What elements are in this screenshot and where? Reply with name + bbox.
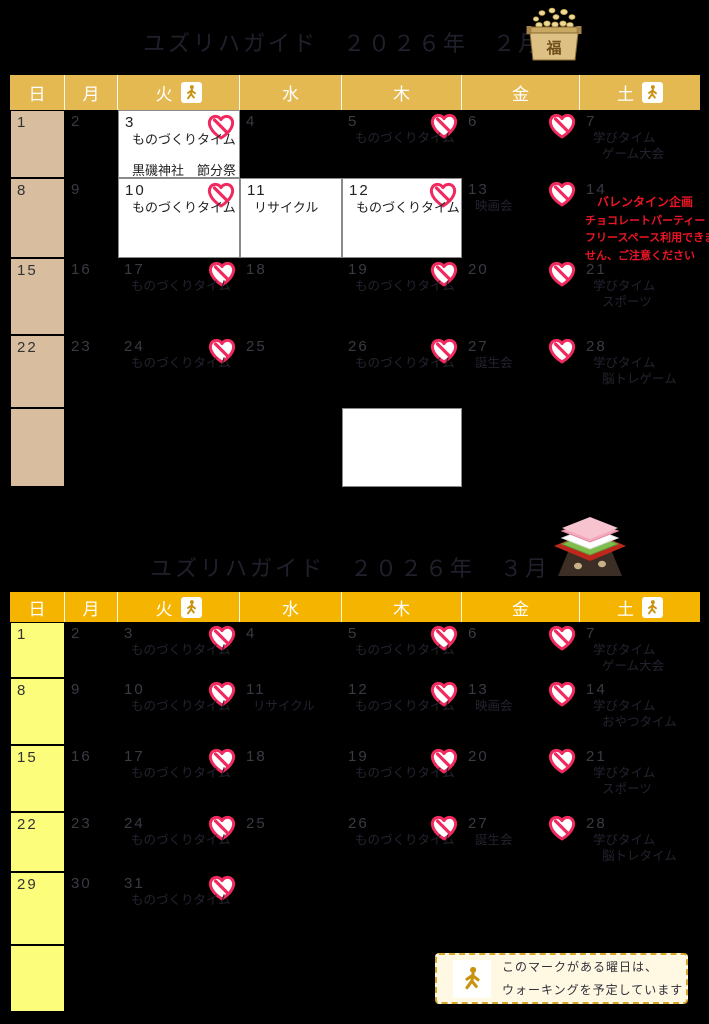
day-cell: 15 — [10, 745, 65, 812]
day-number: 12 — [349, 182, 370, 199]
event-line: ものづくりタイム — [131, 699, 238, 715]
heart-icon — [547, 111, 577, 140]
weekday-header-row: 日月火 水木金土 — [10, 592, 700, 622]
event-text: ものづくりタイム — [355, 833, 460, 849]
day-cell — [65, 945, 118, 1012]
event-text: 学びタイムゲーム大会 — [593, 643, 698, 674]
day-cell: 3 ものづくりタイム — [118, 622, 240, 678]
event-line: 誕生会 — [475, 833, 578, 849]
event-line: ものづくりタイム — [132, 132, 237, 148]
day-cell: 8 — [10, 678, 65, 745]
event-line: 誕生会 — [475, 356, 578, 372]
day-number: 6 — [468, 625, 478, 642]
day-number: 21 — [586, 748, 607, 765]
heart-icon — [547, 259, 577, 288]
day-cell: 27 誕生会 — [462, 812, 580, 872]
day-cell — [342, 408, 462, 487]
walking-person-icon — [181, 597, 202, 618]
day-cell: 9 — [65, 678, 118, 745]
day-cell: 11リサイクル — [240, 678, 342, 745]
weekday-header: 月 — [65, 75, 118, 110]
day-cell: 13 映画会 — [462, 178, 580, 258]
day-number: 15 — [17, 749, 38, 766]
event-text: 誕生会 — [475, 833, 578, 849]
event-line: 学びタイム — [593, 699, 698, 715]
day-number: 2 — [71, 625, 81, 642]
day-cell: 9 — [65, 178, 118, 258]
weekday-label: 月 — [83, 595, 100, 620]
event-text: ものづくりタイム — [131, 279, 238, 295]
event-line: ものづくりタイム — [355, 643, 460, 659]
calendar-week-row: 8910 ものづくりタイム11リサイクル12 ものづくりタイム13 映画会14学… — [10, 678, 700, 745]
day-cell: 18 — [240, 745, 342, 812]
day-number: 22 — [17, 816, 38, 833]
day-cell: 2 — [65, 622, 118, 678]
walking-person-icon — [181, 82, 202, 103]
day-cell: 6 — [462, 110, 580, 178]
alert-line: チョコレートパーティー — [585, 213, 699, 231]
event-line: ものづくりタイム — [355, 279, 460, 295]
day-cell: 12 ものづくりタイム — [342, 178, 462, 258]
title-february: ユズリハガイド ２０２６年 ２月 — [143, 26, 543, 58]
calendar-week-row: 151617 ものづくりタイム1819 ものづくりタイム20 21学びタイムスポ… — [10, 258, 700, 335]
weekday-label: 水 — [282, 80, 299, 105]
event-text: ものづくりタイム — [356, 200, 459, 216]
day-number: 27 — [468, 815, 489, 832]
event-line: リサイクル — [253, 699, 340, 715]
day-number: 19 — [348, 748, 369, 765]
event-line: 映画会 — [475, 699, 578, 715]
weekday-header: 金 — [462, 75, 580, 110]
day-cell — [118, 945, 240, 1012]
event-text: 学びタイム脳トレゲーム — [593, 356, 698, 387]
event-line: 学びタイム — [593, 356, 698, 372]
day-number: 31 — [124, 875, 145, 892]
day-cell: 29 — [10, 872, 65, 945]
calendar-week-row: 222324 ものづくりタイム2526 ものづくりタイム27 誕生会28学びタイ… — [10, 812, 700, 872]
day-cell: 14学びタイムおやつタイム — [580, 678, 700, 745]
weekday-label: 金 — [512, 80, 529, 105]
day-cell: 5 ものづくりタイム — [342, 110, 462, 178]
day-cell: 10 ものづくりタイム — [118, 678, 240, 745]
weekday-header: 水 — [240, 592, 342, 622]
day-number: 5 — [348, 113, 358, 130]
event-text: ものづくりタイム — [131, 893, 238, 909]
event-text: リサイクル — [254, 200, 339, 216]
event-line: スポーツ — [602, 295, 698, 311]
event-text: ものづくりタイム 黒磯神社 節分祭 — [132, 132, 237, 179]
day-cell: 24 ものづくりタイム — [118, 812, 240, 872]
walking-person-icon — [642, 597, 663, 618]
calendar-week-row: 151617 ものづくりタイム1819 ものづくりタイム20 21学びタイムスポ… — [10, 745, 700, 812]
day-number: 22 — [17, 339, 38, 356]
day-number: 1 — [17, 114, 27, 131]
hishimochi-icon — [548, 506, 632, 583]
day-number: 3 — [124, 625, 134, 642]
weekday-header: 木 — [342, 592, 462, 622]
day-cell: 7学びタイムゲーム大会 — [580, 110, 700, 178]
heart-icon — [547, 746, 577, 775]
day-number: 11 — [246, 681, 266, 698]
alert-line: フリースペース利用できま — [585, 230, 699, 248]
event-line: ものづくりタイム — [355, 356, 460, 372]
day-cell — [240, 872, 342, 945]
calendar-week-row — [10, 408, 700, 487]
weekday-label: 日 — [29, 595, 46, 620]
event-text: ものづくりタイム — [355, 766, 460, 782]
day-cell: 31 ものづくりタイム — [118, 872, 240, 945]
legend-line-1: このマークがある曜日は、 — [502, 956, 683, 979]
day-number: 18 — [246, 748, 267, 765]
day-cell — [65, 408, 118, 487]
day-number: 29 — [17, 876, 38, 893]
event-text: ものづくりタイム — [355, 643, 460, 659]
legend-line-2: ウォーキングを予定しています — [502, 979, 683, 1002]
day-cell: 2 — [65, 110, 118, 178]
day-number: 20 — [468, 748, 489, 765]
walking-person-icon — [642, 82, 663, 103]
day-number: 23 — [71, 815, 92, 832]
event-line: スポーツ — [602, 782, 698, 798]
day-number: 19 — [348, 261, 369, 278]
day-cell: 22 — [10, 812, 65, 872]
weekday-header: 木 — [342, 75, 462, 110]
day-number: 7 — [586, 113, 596, 130]
event-line: ものづくりタイム — [131, 766, 238, 782]
weekday-label: 土 — [617, 595, 634, 620]
weekday-header: 月 — [65, 592, 118, 622]
event-line: 学びタイム — [593, 131, 698, 147]
weekday-label: 金 — [512, 595, 529, 620]
day-number: 12 — [348, 681, 369, 698]
event-text: 誕生会 — [475, 356, 578, 372]
event-line: ものづくりタイム — [131, 893, 238, 909]
weekday-label: 月 — [83, 80, 100, 105]
alert-line: バレンタイン企画 — [597, 194, 699, 212]
event-line: ものづくりタイム — [131, 643, 238, 659]
day-number: 8 — [17, 682, 27, 699]
event-text: 学びタイム脳トレタイム — [593, 833, 698, 864]
event-line: ものづくりタイム — [131, 833, 238, 849]
event-text: ものづくりタイム — [131, 699, 238, 715]
day-cell — [240, 408, 342, 487]
alert-notice-text: バレンタイン企画チョコレートパーティーフリースペース利用できません、ご注意くださ… — [585, 194, 699, 265]
day-cell: 22 — [10, 335, 65, 408]
event-text: 映画会 — [475, 199, 578, 215]
day-number: 24 — [124, 815, 145, 832]
event-line: リサイクル — [254, 200, 339, 216]
day-cell: 27 誕生会 — [462, 335, 580, 408]
day-cell: 26 ものづくりタイム — [342, 335, 462, 408]
day-cell: 4 — [240, 622, 342, 678]
event-line: 黒磯神社 節分祭 — [132, 163, 237, 179]
event-line: 学びタイム — [593, 766, 698, 782]
day-cell — [118, 408, 240, 487]
event-text: ものづくりタイム — [131, 356, 238, 372]
day-number: 25 — [246, 338, 267, 355]
day-cell — [342, 872, 462, 945]
day-number: 13 — [468, 681, 489, 698]
event-text: リサイクル — [253, 699, 340, 715]
calendar-week-row: 123 ものづくりタイム 黒磯神社 節分祭45 ものづくりタイム6 7学びタイム… — [10, 110, 700, 178]
day-number: 15 — [17, 262, 38, 279]
day-number: 10 — [124, 681, 145, 698]
day-number: 3 — [125, 114, 135, 131]
day-cell — [580, 872, 700, 945]
weekday-label: 木 — [393, 595, 410, 620]
event-line: 学びタイム — [593, 279, 698, 295]
weekday-label: 火 — [156, 595, 173, 620]
day-number: 9 — [71, 181, 81, 198]
event-line: ものづくりタイム — [131, 279, 238, 295]
weekday-label: 水 — [282, 595, 299, 620]
event-text: ものづくりタイム — [355, 279, 460, 295]
day-cell: 19 ものづくりタイム — [342, 258, 462, 335]
day-number: 20 — [468, 261, 489, 278]
event-text: ものづくりタイム — [131, 643, 238, 659]
weekday-header: 火 — [118, 592, 240, 622]
heart-icon — [547, 623, 577, 652]
weekday-header-row: 日月火 水木金土 — [10, 75, 700, 110]
legend-text: このマークがある曜日は、 ウォーキングを予定しています — [502, 956, 683, 1002]
day-cell: 20 — [462, 745, 580, 812]
event-text: ものづくりタイム — [355, 356, 460, 372]
day-number: 2 — [71, 113, 81, 130]
day-cell: 28学びタイム脳トレゲーム — [580, 335, 700, 408]
day-cell: 5 ものづくりタイム — [342, 622, 462, 678]
day-cell: 20 — [462, 258, 580, 335]
day-cell — [240, 945, 342, 1012]
weekday-label: 火 — [156, 80, 173, 105]
day-cell — [10, 945, 65, 1012]
event-line — [132, 148, 237, 164]
weekday-header: 土 — [580, 592, 700, 622]
event-text: 学びタイムスポーツ — [593, 766, 698, 797]
weekday-header: 土 — [580, 75, 700, 110]
day-cell: 23 — [65, 335, 118, 408]
weekday-header: 水 — [240, 75, 342, 110]
day-cell: 1 — [10, 110, 65, 178]
day-number: 17 — [124, 261, 145, 278]
weekday-label: 木 — [393, 80, 410, 105]
day-number: 28 — [586, 338, 607, 355]
walking-icon-frame — [453, 960, 491, 998]
event-text: ものづくりタイム — [355, 131, 460, 147]
event-text: ものづくりタイム — [131, 766, 238, 782]
event-line: ものづくりタイム — [355, 833, 460, 849]
day-number: 26 — [348, 338, 369, 355]
day-cell: 28学びタイム脳トレタイム — [580, 812, 700, 872]
fuku-kanji: 福 — [545, 39, 561, 57]
day-cell: 21学びタイムスポーツ — [580, 258, 700, 335]
day-cell: 13 映画会 — [462, 678, 580, 745]
day-number: 16 — [71, 261, 92, 278]
event-text: ものづくりタイム — [131, 833, 238, 849]
day-number: 1 — [17, 626, 27, 643]
walking-legend-box: このマークがある曜日は、 ウォーキングを予定しています — [435, 953, 688, 1004]
calendar-february: 日月火 水木金土 123 ものづくりタイム 黒磯神社 節分祭45 ものづくりタイ… — [10, 75, 700, 487]
event-line: ものづくりタイム — [355, 699, 460, 715]
event-text: 映画会 — [475, 699, 578, 715]
day-cell: 18 — [240, 258, 342, 335]
day-number: 24 — [124, 338, 145, 355]
day-number: 10 — [125, 182, 146, 199]
weekday-label: 日 — [29, 80, 46, 105]
event-text: ものづくりタイム — [132, 200, 237, 216]
calendar-week-row: 293031 ものづくりタイム — [10, 872, 700, 945]
day-cell: 3 ものづくりタイム 黒磯神社 節分祭 — [118, 110, 240, 178]
event-line: 脳トレタイム — [602, 849, 698, 865]
day-cell: 4 — [240, 110, 342, 178]
day-cell: 24 ものづくりタイム — [118, 335, 240, 408]
day-cell: 19 ものづくりタイム — [342, 745, 462, 812]
day-cell: 14バレンタイン企画チョコレートパーティーフリースペース利用できません、ご注意く… — [580, 178, 700, 258]
day-number: 16 — [71, 748, 92, 765]
day-number: 17 — [124, 748, 145, 765]
weekday-header: 日 — [10, 75, 65, 110]
day-cell: 23 — [65, 812, 118, 872]
weekday-header: 火 — [118, 75, 240, 110]
day-number: 26 — [348, 815, 369, 832]
day-number: 4 — [246, 113, 256, 130]
calendar-week-row: 222324 ものづくりタイム2526 ものづくりタイム27 誕生会28学びタイ… — [10, 335, 700, 408]
day-number: 27 — [468, 338, 489, 355]
day-number: 14 — [586, 681, 607, 698]
day-cell: 6 — [462, 622, 580, 678]
day-cell: 16 — [65, 745, 118, 812]
event-line: ものづくりタイム — [355, 766, 460, 782]
walking-person-icon — [459, 965, 486, 992]
event-line: 映画会 — [475, 199, 578, 215]
day-cell: 11リサイクル — [240, 178, 342, 258]
event-line: ゲーム大会 — [602, 659, 698, 675]
calendar-week-row: 123 ものづくりタイム45 ものづくりタイム6 7学びタイムゲーム大会 — [10, 622, 700, 678]
day-cell: 25 — [240, 812, 342, 872]
day-number: 4 — [246, 625, 256, 642]
day-number: 23 — [71, 338, 92, 355]
day-cell: 1 — [10, 622, 65, 678]
event-line: ゲーム大会 — [602, 147, 698, 163]
calendar-page: ユズリハガイド ２０２６年 ２月 福 日月火 — [0, 0, 709, 1024]
event-line: ものづくりタイム — [132, 200, 237, 216]
weekday-header: 日 — [10, 592, 65, 622]
day-cell: 17 ものづくりタイム — [118, 745, 240, 812]
day-number: 9 — [71, 681, 81, 698]
day-number: 7 — [586, 625, 596, 642]
day-cell: 21学びタイムスポーツ — [580, 745, 700, 812]
day-cell: 15 — [10, 258, 65, 335]
day-cell: 8 — [10, 178, 65, 258]
day-number: 8 — [17, 182, 27, 199]
event-line: 学びタイム — [593, 833, 698, 849]
day-number: 13 — [468, 181, 489, 198]
event-line: ものづくりタイム — [355, 131, 460, 147]
day-cell — [10, 408, 65, 487]
weekday-label: 土 — [617, 80, 634, 105]
day-cell: 7学びタイムゲーム大会 — [580, 622, 700, 678]
day-number: 28 — [586, 815, 607, 832]
day-cell: 12 ものづくりタイム — [342, 678, 462, 745]
event-line: おやつタイム — [602, 715, 698, 731]
day-number: 6 — [468, 113, 478, 130]
event-line: 脳トレゲーム — [602, 372, 698, 388]
day-number: 5 — [348, 625, 358, 642]
calendar-march: 日月火 水木金土 123 ものづくりタイム45 ものづくりタイム6 7学びタイム… — [10, 592, 700, 1012]
setsubun-bean-box-icon: 福 — [523, 7, 585, 69]
day-cell: 25 — [240, 335, 342, 408]
event-line: ものづくりタイム — [356, 200, 459, 216]
calendar-week-row: 8910 ものづくりタイム11リサイクル12 ものづくりタイム13 映画会14バ… — [10, 178, 700, 258]
day-cell: 16 — [65, 258, 118, 335]
day-number: 18 — [246, 261, 267, 278]
event-text: 学びタイムゲーム大会 — [593, 131, 698, 162]
event-text: 学びタイムおやつタイム — [593, 699, 698, 730]
event-text: ものづくりタイム — [355, 699, 460, 715]
weekday-header: 金 — [462, 592, 580, 622]
day-cell: 17 ものづくりタイム — [118, 258, 240, 335]
day-number: 21 — [586, 261, 607, 278]
day-number: 25 — [246, 815, 267, 832]
event-text: 学びタイムスポーツ — [593, 279, 698, 310]
day-number: 11 — [247, 182, 267, 199]
day-cell: 10 ものづくりタイム — [118, 178, 240, 258]
day-cell: 26 ものづくりタイム — [342, 812, 462, 872]
event-line: 学びタイム — [593, 643, 698, 659]
day-cell — [462, 408, 580, 487]
event-line: ものづくりタイム — [131, 356, 238, 372]
title-march: ユズリハガイド ２０２６年 ３月 — [150, 551, 550, 583]
day-cell — [580, 408, 700, 487]
day-number: 30 — [71, 875, 92, 892]
day-cell: 30 — [65, 872, 118, 945]
day-cell — [462, 872, 580, 945]
